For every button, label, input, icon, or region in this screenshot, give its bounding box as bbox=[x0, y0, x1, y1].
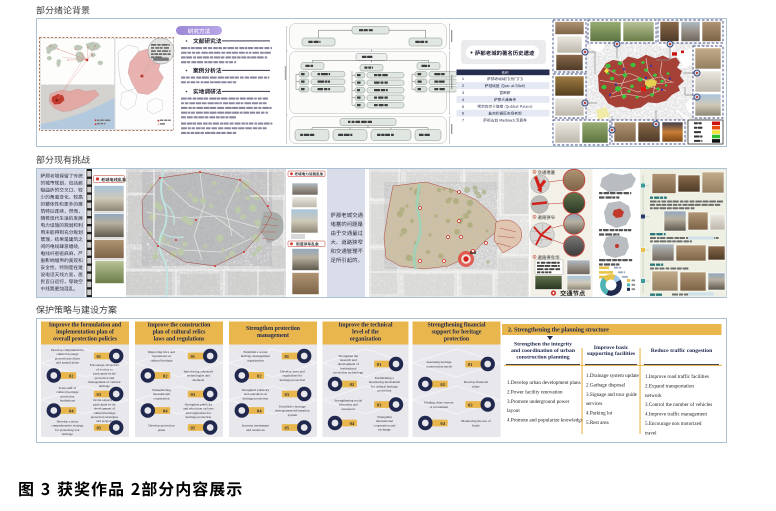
svg-text:02: 02 bbox=[440, 382, 445, 387]
svg-text:01: 01 bbox=[285, 354, 290, 359]
svg-text:laws and regulations: laws and regulations bbox=[154, 336, 206, 342]
svg-text:of investment: of investment bbox=[430, 405, 449, 409]
svg-text:Strengthening financial: Strengthening financial bbox=[427, 323, 485, 329]
svg-text:02: 02 bbox=[350, 382, 355, 387]
svg-text:heritage: heritage bbox=[62, 432, 73, 436]
svg-text:support for heritage: support for heritage bbox=[432, 330, 482, 336]
svg-text:Improve the construction: Improve the construction bbox=[148, 323, 211, 329]
svg-text:Improve basic: Improve basic bbox=[594, 345, 629, 351]
svg-text:04: 04 bbox=[163, 408, 168, 413]
svg-text:03: 03 bbox=[468, 402, 473, 407]
svg-text:heritage: heritage bbox=[99, 384, 110, 388]
svg-text:and annual plans: and annual plans bbox=[56, 361, 79, 365]
svg-text:cultural heritage: cultural heritage bbox=[150, 358, 173, 362]
svg-text:02: 02 bbox=[257, 373, 262, 378]
svg-text:1.Improve road traffic facilit: 1.Improve road traffic facilities bbox=[645, 373, 709, 380]
svg-text:2. Strengthening the planning: 2. Strengthening the planning structure bbox=[508, 328, 609, 334]
svg-text:layout: layout bbox=[507, 408, 520, 414]
svg-text:04: 04 bbox=[257, 408, 262, 413]
svg-text:overall protection policies: overall protection policies bbox=[53, 336, 117, 342]
svg-text:level of the: level of the bbox=[352, 330, 379, 336]
svg-text:03: 03 bbox=[285, 392, 290, 397]
svg-text:Reduce traffic congestion: Reduce traffic congestion bbox=[651, 348, 713, 354]
svg-text:methods: methods bbox=[193, 378, 205, 382]
svg-text:4.Promote and popularize knowl: 4.Promote and popularize knowledge bbox=[507, 418, 584, 424]
svg-text:Strengthen the integrity: Strengthen the integrity bbox=[514, 342, 572, 348]
svg-text:heritage protection: heritage protection bbox=[186, 415, 212, 419]
svg-text:and coordination of urban: and coordination of urban bbox=[511, 348, 576, 354]
svg-text:protection technology: protection technology bbox=[333, 371, 363, 375]
svg-text:3.Promote underground power: 3.Promote underground power bbox=[507, 399, 570, 405]
svg-text:conservation needs: conservation needs bbox=[426, 364, 453, 368]
svg-text:01: 01 bbox=[377, 362, 382, 367]
svg-text:Strengthen protection: Strengthen protection bbox=[246, 326, 301, 332]
svg-text:institutions: institutions bbox=[60, 399, 76, 403]
svg-text:and projects: and projects bbox=[96, 419, 113, 423]
svg-text:plans: plans bbox=[472, 384, 480, 388]
svg-text:3.Signage and tour guide: 3.Signage and tour guide bbox=[586, 392, 638, 398]
svg-text:5.Encourage non motorized: 5.Encourage non motorized bbox=[645, 421, 702, 427]
svg-text:protection: protection bbox=[378, 389, 392, 393]
svg-text:plan of cultural relics: plan of cultural relics bbox=[153, 330, 207, 336]
svg-text:02: 02 bbox=[69, 373, 74, 378]
svg-text:03: 03 bbox=[191, 392, 196, 397]
svg-text:awareness: awareness bbox=[341, 407, 356, 411]
svg-text:heritage protection: heritage protection bbox=[243, 396, 269, 400]
svg-text:management: management bbox=[257, 333, 289, 339]
svg-text:05: 05 bbox=[97, 425, 102, 430]
svg-text:2.Garbage disposal: 2.Garbage disposal bbox=[586, 382, 626, 388]
svg-text:03: 03 bbox=[377, 402, 382, 407]
svg-text:1.Develop urban development pl: 1.Develop urban development plans bbox=[507, 380, 581, 386]
svg-text:plans: plans bbox=[158, 428, 166, 432]
svg-text:Improve the technical: Improve the technical bbox=[339, 323, 393, 329]
svg-text:2.Power facility renovation: 2.Power facility renovation bbox=[507, 388, 563, 395]
svg-text:funds: funds bbox=[472, 423, 480, 427]
svg-text:05: 05 bbox=[285, 425, 290, 430]
svg-text:and resources: and resources bbox=[246, 428, 265, 432]
svg-text:construction planning: construction planning bbox=[516, 354, 569, 360]
svg-text:4.Parking lot: 4.Parking lot bbox=[586, 411, 613, 417]
svg-text:04: 04 bbox=[69, 408, 74, 413]
svg-text:2.Expand transportation: 2.Expand transportation bbox=[645, 383, 694, 389]
svg-text:organization: organization bbox=[247, 358, 264, 362]
svg-text:cooperation: cooperation bbox=[153, 396, 169, 400]
svg-text:01: 01 bbox=[97, 354, 102, 359]
svg-text:03: 03 bbox=[97, 392, 102, 397]
svg-text:01: 01 bbox=[191, 354, 196, 359]
svg-text:5.Rest area: 5.Rest area bbox=[586, 420, 609, 426]
svg-text:Improve the formulation and: Improve the formulation and bbox=[49, 323, 122, 329]
svg-text:1.Drainage system update: 1.Drainage system update bbox=[586, 373, 639, 379]
svg-text:04: 04 bbox=[350, 421, 355, 426]
svg-text:4.Improve traffic management: 4.Improve traffic management bbox=[645, 411, 708, 418]
svg-text:02: 02 bbox=[163, 373, 168, 378]
svg-text:3.Control the number of vehicl: 3.Control the number of vehicles bbox=[645, 401, 712, 408]
svg-text:exchange: exchange bbox=[378, 428, 391, 432]
svg-text:organization: organization bbox=[350, 336, 382, 342]
svg-text:services: services bbox=[586, 401, 602, 407]
svg-text:travel: travel bbox=[645, 430, 657, 436]
svg-text:implementation plan of: implementation plan of bbox=[56, 330, 114, 336]
svg-text:01: 01 bbox=[468, 362, 473, 367]
svg-text:network: network bbox=[645, 393, 662, 399]
svg-text:04: 04 bbox=[440, 421, 445, 426]
svg-text:protection: protection bbox=[444, 336, 470, 342]
svg-text:supporting facilities: supporting facilities bbox=[587, 351, 636, 357]
svg-text:system: system bbox=[288, 413, 298, 417]
svg-text:05: 05 bbox=[191, 425, 196, 430]
svg-text:heritage protection: heritage protection bbox=[280, 378, 306, 382]
